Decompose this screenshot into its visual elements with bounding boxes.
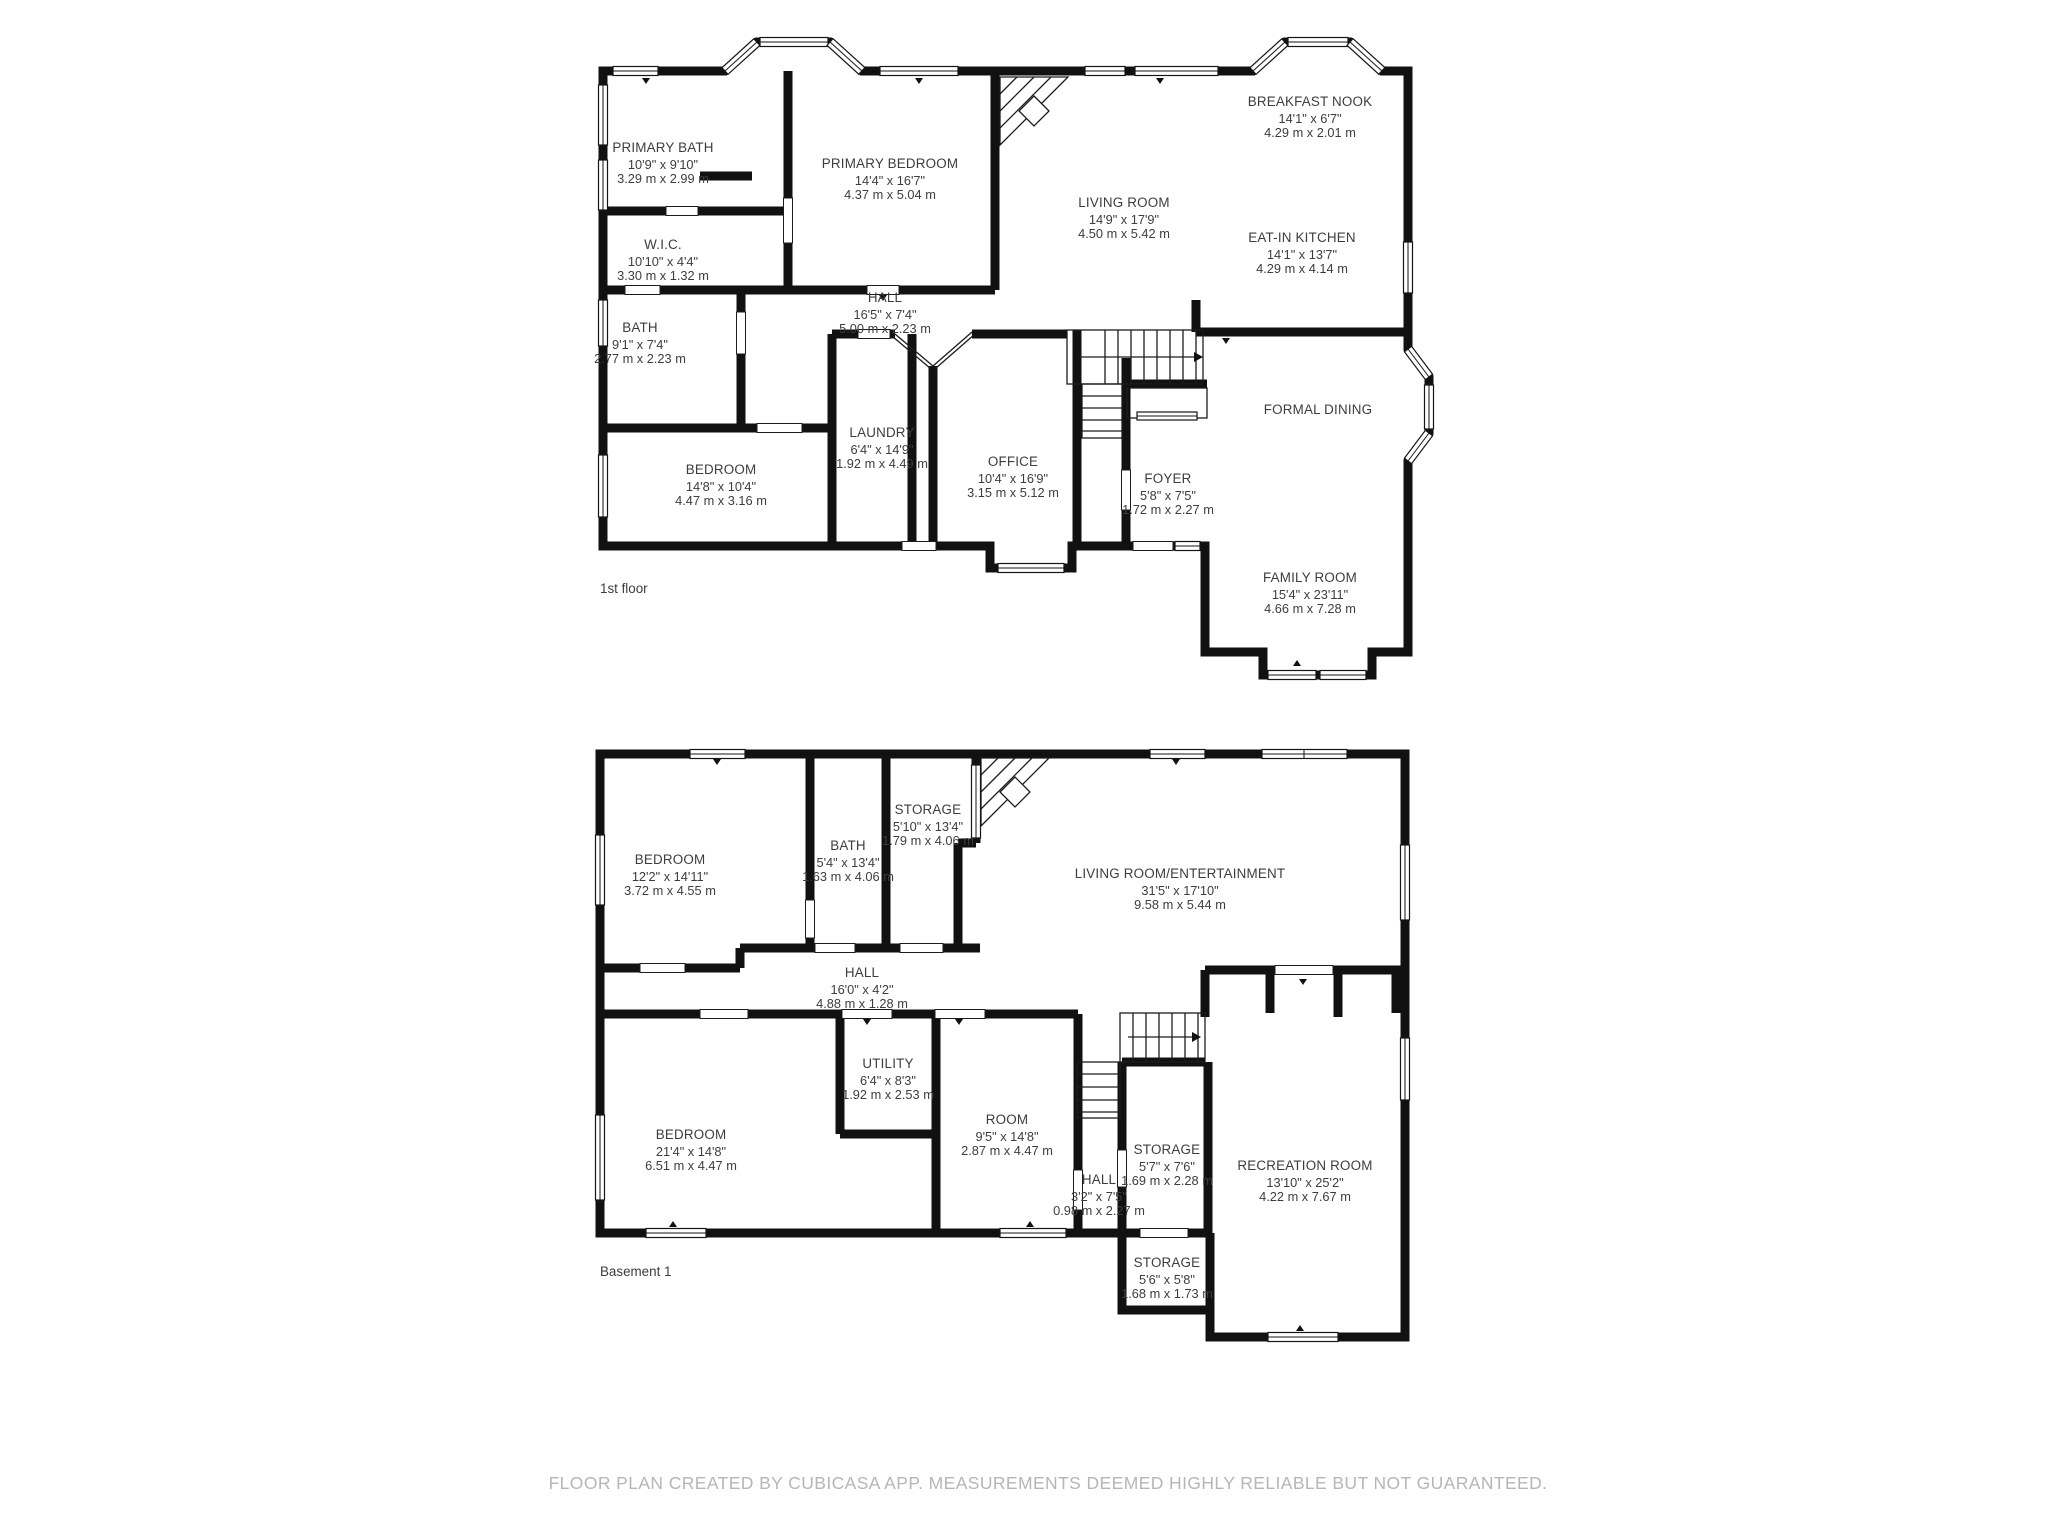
- room-name: PRIMARY BEDROOM: [822, 156, 958, 171]
- room-dimensions-imperial: 14'1" x 13'7": [1267, 247, 1337, 262]
- floor-plan-basement: BEDROOM 12'2" x 14'11" 3.72 m x 4.55 m B…: [596, 750, 1410, 1342]
- room-name: PRIMARY BATH: [612, 140, 713, 155]
- room-dimensions-imperial: 9'1" x 7'4": [612, 337, 668, 352]
- room-dimensions-metric: 2.87 m x 4.47 m: [961, 1143, 1053, 1158]
- room-dimensions-metric: 1.68 m x 1.73 m: [1121, 1286, 1213, 1301]
- room-dimensions-imperial: 9'5" x 14'8": [975, 1129, 1038, 1144]
- room-name: W.I.C.: [644, 237, 682, 252]
- room-dimensions-metric: 1.79 m x 4.06 m: [882, 833, 974, 848]
- room-dimensions-imperial: 13'10" x 25'2": [1266, 1175, 1343, 1190]
- room-name: HALL: [868, 290, 902, 305]
- room-label-bedroom-first: BEDROOM 14'8" x 10'4" 4.47 m x 3.16 m: [675, 462, 767, 508]
- room-name: BEDROOM: [656, 1127, 727, 1142]
- room-name: FOYER: [1144, 471, 1191, 486]
- floor-label-first: 1st floor: [600, 581, 648, 596]
- room-dimensions-imperial: 10'10" x 4'4": [628, 254, 698, 269]
- room-dimensions-metric: 3.30 m x 1.32 m: [617, 268, 709, 283]
- room-name: BEDROOM: [635, 852, 706, 867]
- room-dimensions-imperial: 14'4" x 16'7": [855, 173, 925, 188]
- room-dimensions-metric: 9.58 m x 5.44 m: [1134, 897, 1226, 912]
- room-name: LIVING ROOM: [1078, 195, 1169, 210]
- room-dimensions-metric: 3.72 m x 4.55 m: [624, 883, 716, 898]
- room-name: UTILITY: [862, 1056, 913, 1071]
- room-name: RECREATION ROOM: [1237, 1158, 1372, 1173]
- room-name: STORAGE: [1134, 1255, 1201, 1270]
- exterior-walls: [600, 754, 1405, 1337]
- room-name: STORAGE: [895, 802, 962, 817]
- room-dimensions-metric: 1.92 m x 2.53 m: [842, 1087, 934, 1102]
- room-dimensions-metric: 3.15 m x 5.12 m: [967, 485, 1059, 500]
- room-dimensions-metric: 1.69 m x 2.28 m: [1121, 1173, 1213, 1188]
- room-name: STORAGE: [1134, 1142, 1201, 1157]
- room-name: HALL: [1082, 1172, 1116, 1187]
- room-name: BREAKFAST NOOK: [1248, 94, 1373, 109]
- room-dimensions-metric: 4.50 m x 5.42 m: [1078, 226, 1170, 241]
- room-dimensions-imperial: 5'10" x 13'4": [893, 819, 963, 834]
- room-dimensions-metric: 1.92 m x 4.49 m: [836, 456, 928, 471]
- room-dimensions-imperial: 14'8" x 10'4": [686, 479, 756, 494]
- floor-plan-first-floor: PRIMARY BATH 10'9" x 9'10" 3.29 m x 2.99…: [594, 38, 1433, 680]
- room-dimensions-metric: 0.98 m x 2.27 m: [1053, 1203, 1145, 1218]
- room-label-formal-dining: FORMAL DINING: [1264, 402, 1373, 417]
- room-dimensions-metric: 4.88 m x 1.28 m: [816, 996, 908, 1011]
- room-dimensions-metric: 4.29 m x 4.14 m: [1256, 261, 1348, 276]
- room-label-living-room: LIVING ROOM 14'9" x 17'9" 4.50 m x 5.42 …: [1078, 195, 1170, 241]
- room-dimensions-metric: 4.66 m x 7.28 m: [1264, 601, 1356, 616]
- room-dimensions-imperial: 5'8" x 7'5": [1140, 488, 1196, 503]
- room-dimensions-metric: 6.51 m x 4.47 m: [645, 1158, 737, 1173]
- room-name: HALL: [845, 965, 879, 980]
- room-dimensions-imperial: 31'5" x 17'10": [1141, 883, 1218, 898]
- room-name: BATH: [830, 838, 866, 853]
- room-dimensions-imperial: 14'9" x 17'9": [1089, 212, 1159, 227]
- room-dimensions-imperial: 12'2" x 14'11": [632, 869, 708, 884]
- room-dimensions-imperial: 3'2" x 7'5": [1071, 1189, 1127, 1204]
- room-dimensions-metric: 2.77 m x 2.23 m: [594, 351, 686, 366]
- room-name: ROOM: [986, 1112, 1028, 1127]
- room-dimensions-imperial: 6'4" x 8'3": [860, 1073, 916, 1088]
- room-name: BATH: [622, 320, 658, 335]
- floorplan-canvas: PRIMARY BATH 10'9" x 9'10" 3.29 m x 2.99…: [0, 0, 2048, 1536]
- room-name: EAT-IN KITCHEN: [1248, 230, 1355, 245]
- room-dimensions-metric: 1.63 m x 4.06 m: [802, 869, 894, 884]
- room-name: OFFICE: [988, 454, 1038, 469]
- room-dimensions-imperial: 6'4" x 14'9": [850, 442, 913, 457]
- room-dimensions-imperial: 5'7" x 7'6": [1139, 1159, 1195, 1174]
- room-dimensions-imperial: 16'0" x 4'2": [830, 982, 893, 997]
- floor-label-basement: Basement 1: [600, 1264, 671, 1279]
- room-label-family-room: FAMILY ROOM 15'4" x 23'11" 4.66 m x 7.28…: [1263, 570, 1357, 616]
- floorplan-page: PRIMARY BATH 10'9" x 9'10" 3.29 m x 2.99…: [0, 0, 2048, 1536]
- room-dimensions-imperial: 21'4" x 14'8": [656, 1144, 726, 1159]
- room-name: FORMAL DINING: [1264, 402, 1373, 417]
- room-dimensions-metric: 4.22 m x 7.67 m: [1259, 1189, 1351, 1204]
- room-label-storage-upper: STORAGE 5'10" x 13'4" 1.79 m x 4.06 m: [882, 802, 974, 848]
- room-name: LAUNDRY: [849, 425, 914, 440]
- room-name: BEDROOM: [686, 462, 757, 477]
- room-dimensions-metric: 4.47 m x 3.16 m: [675, 493, 767, 508]
- room-name: FAMILY ROOM: [1263, 570, 1357, 585]
- room-dimensions-metric: 4.29 m x 2.01 m: [1264, 125, 1356, 140]
- footer-disclaimer: FLOOR PLAN CREATED BY CUBICASA APP. MEAS…: [549, 1473, 1548, 1493]
- room-dimensions-imperial: 10'9" x 9'10": [628, 157, 698, 172]
- room-dimensions-imperial: 14'1" x 6'7": [1278, 111, 1341, 126]
- room-label-bedroom-basement-2: BEDROOM 21'4" x 14'8" 6.51 m x 4.47 m: [645, 1127, 737, 1173]
- room-dimensions-metric: 3.29 m x 2.99 m: [617, 171, 709, 186]
- room-label-bedroom-basement-1: BEDROOM 12'2" x 14'11" 3.72 m x 4.55 m: [624, 852, 716, 898]
- room-name: LIVING ROOM/ENTERTAINMENT: [1075, 866, 1286, 881]
- room-dimensions-imperial: 5'4" x 13'4": [816, 855, 879, 870]
- room-dimensions-metric: 4.37 m x 5.04 m: [844, 187, 936, 202]
- room-dimensions-imperial: 16'5" x 7'4": [853, 307, 916, 322]
- room-dimensions-imperial: 5'6" x 5'8": [1139, 1272, 1195, 1287]
- room-dimensions-metric: 1.72 m x 2.27 m: [1122, 502, 1214, 517]
- room-dimensions-metric: 5.00 m x 2.23 m: [839, 321, 931, 336]
- room-dimensions-imperial: 10'4" x 16'9": [978, 471, 1048, 486]
- room-dimensions-imperial: 15'4" x 23'11": [1272, 587, 1348, 602]
